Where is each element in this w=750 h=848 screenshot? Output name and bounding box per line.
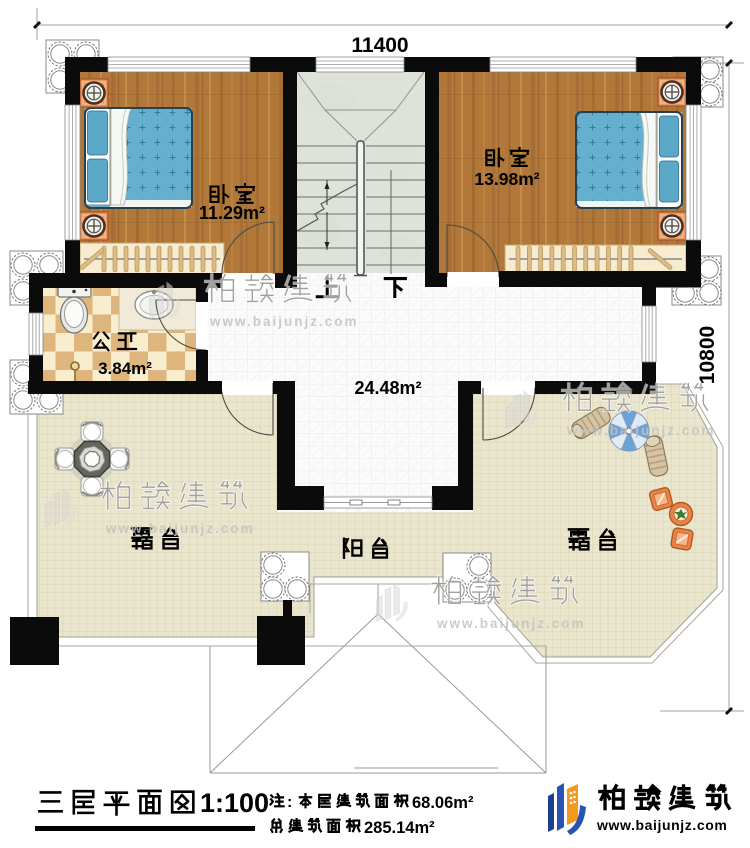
svg-text:10800: 10800: [696, 326, 719, 384]
svg-text:11.29m²: 11.29m²: [199, 203, 265, 223]
svg-text:www.baijunjz.com: www.baijunjz.com: [105, 521, 255, 536]
svg-text:www.baijunjz.com: www.baijunjz.com: [566, 423, 716, 438]
svg-text:www.baijunjz.com: www.baijunjz.com: [436, 616, 586, 631]
svg-text:1:100: 1:100: [200, 788, 269, 818]
svg-text::: :: [287, 794, 292, 811]
svg-text:24.48m²: 24.48m²: [354, 378, 421, 398]
svg-text:285.14m²: 285.14m²: [364, 819, 435, 837]
svg-text:11400: 11400: [351, 34, 408, 57]
svg-text:3.84m²: 3.84m²: [98, 359, 152, 378]
svg-text:www.baijunjz.com: www.baijunjz.com: [209, 314, 359, 329]
svg-text:13.98m²: 13.98m²: [474, 169, 539, 189]
svg-text:68.06m²: 68.06m²: [412, 794, 474, 812]
svg-text:www.baijunjz.com: www.baijunjz.com: [596, 817, 727, 833]
